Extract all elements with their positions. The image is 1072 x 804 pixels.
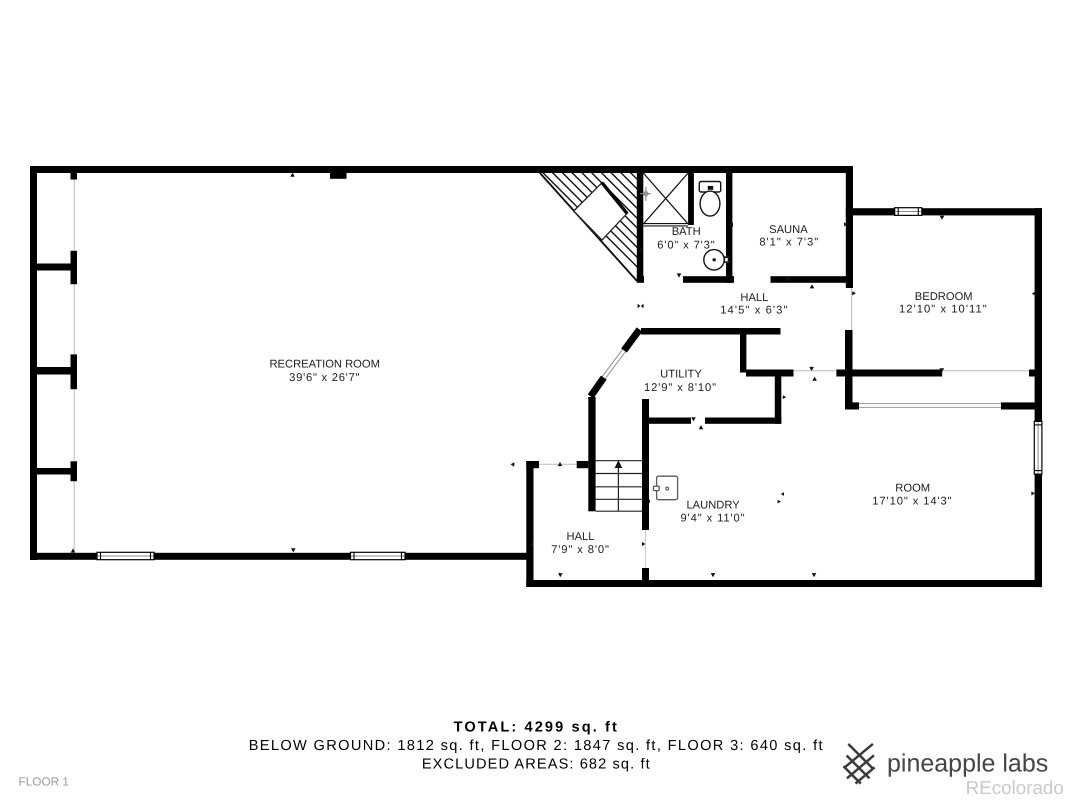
svg-text:BELOW GROUND: 1812 sq. ft, FLO: BELOW GROUND: 1812 sq. ft, FLOOR 2: 1847… (249, 738, 824, 754)
svg-text:TOTAL: 4299 sq. ft: TOTAL: 4299 sq. ft (454, 720, 619, 736)
svg-text:17'10" x 14'3": 17'10" x 14'3" (872, 496, 952, 508)
svg-text:HALL: HALL (567, 531, 595, 543)
svg-text:12'10" x 10'11": 12'10" x 10'11" (899, 304, 988, 316)
svg-text:14'5" x 6'3": 14'5" x 6'3" (720, 305, 788, 317)
svg-text:LAUNDRY: LAUNDRY (686, 500, 740, 512)
svg-text:REcolorado: REcolorado (966, 777, 1064, 798)
svg-text:EXCLUDED AREAS: 682 sq. ft: EXCLUDED AREAS: 682 sq. ft (422, 756, 651, 772)
svg-text:pineapple labs: pineapple labs (887, 749, 1048, 777)
svg-text:HALL: HALL (740, 292, 768, 304)
svg-text:BEDROOM: BEDROOM (915, 291, 973, 303)
svg-text:9'4" x 11'0": 9'4" x 11'0" (680, 513, 745, 525)
svg-text:6'0" x 7'3": 6'0" x 7'3" (657, 239, 715, 251)
svg-text:7'9" x 8'0": 7'9" x 8'0" (551, 544, 610, 556)
svg-text:RECREATION ROOM: RECREATION ROOM (269, 358, 379, 370)
svg-text:BATH: BATH (672, 226, 701, 238)
svg-text:UTILITY: UTILITY (660, 368, 702, 380)
svg-text:39'6" x 26'7": 39'6" x 26'7" (289, 372, 360, 384)
svg-text:SAUNA: SAUNA (769, 224, 808, 236)
svg-text:8'1" x 7'3": 8'1" x 7'3" (759, 236, 819, 248)
svg-text:12'9" x 8'10": 12'9" x 8'10" (644, 382, 717, 394)
svg-text:ROOM: ROOM (895, 483, 930, 495)
svg-text:FLOOR 1: FLOOR 1 (19, 775, 69, 789)
